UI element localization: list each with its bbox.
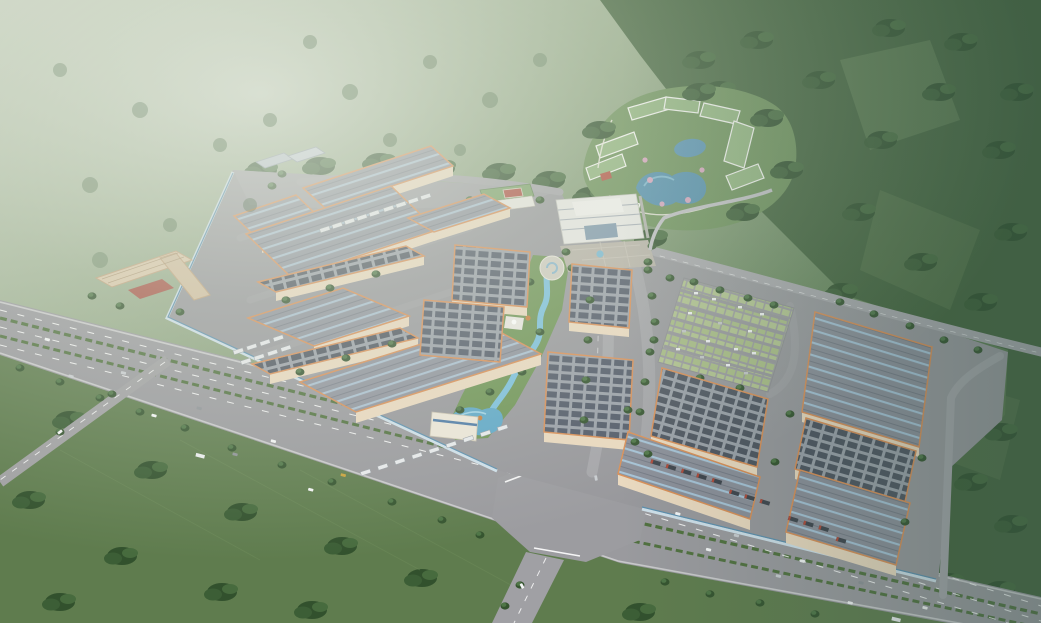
aerial-rendering: Daytime bird's-eye 3D architectural rend… (0, 0, 1041, 623)
atmosphere (0, 0, 1041, 623)
